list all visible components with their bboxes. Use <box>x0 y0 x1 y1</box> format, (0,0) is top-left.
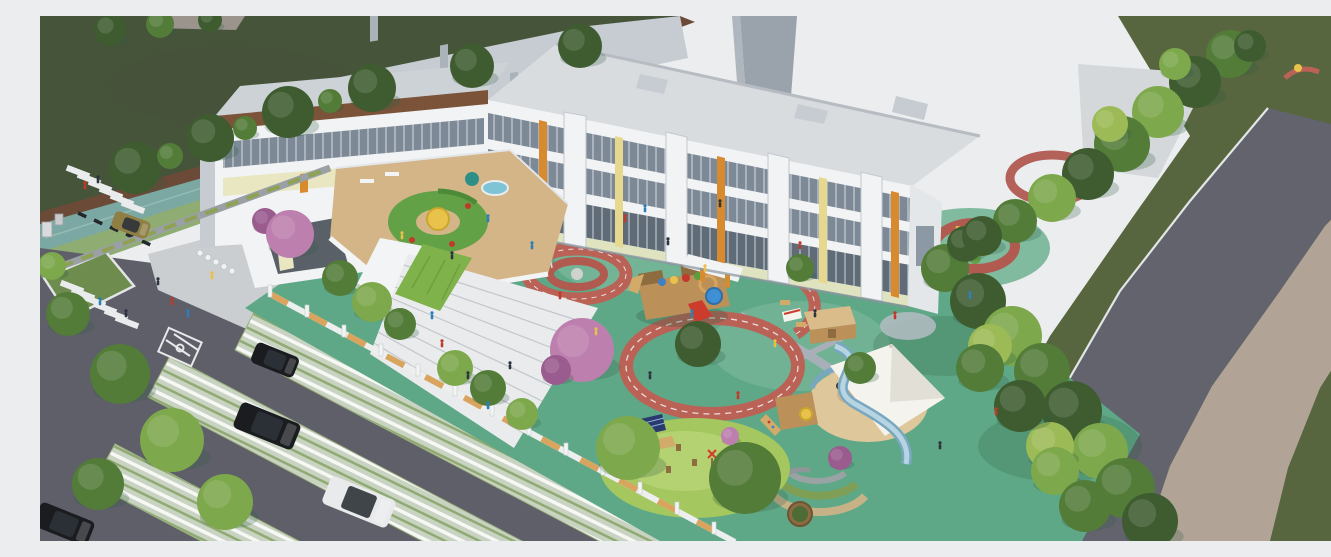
accent-column-yellow <box>615 136 623 248</box>
cushion <box>409 237 415 243</box>
person <box>508 361 511 369</box>
person <box>83 181 86 189</box>
bench <box>385 172 399 176</box>
person <box>893 311 896 319</box>
cushion <box>449 241 455 247</box>
cushion <box>465 203 471 209</box>
portico-pier <box>768 153 789 284</box>
person <box>156 277 159 285</box>
person <box>994 407 997 415</box>
accent-column-orange <box>717 156 725 266</box>
portico-pier <box>564 112 586 248</box>
person <box>450 251 453 259</box>
accent-column-orange <box>891 191 899 298</box>
person <box>718 199 721 207</box>
person <box>486 401 489 409</box>
person <box>400 231 403 239</box>
person <box>813 309 816 317</box>
person <box>690 309 693 317</box>
accent-column-yellow <box>819 177 827 284</box>
person <box>98 297 101 305</box>
tree <box>146 16 177 38</box>
person <box>186 309 189 317</box>
portico-pier <box>666 132 687 266</box>
scene-canvas <box>40 16 1331 541</box>
person <box>486 214 489 222</box>
person <box>703 264 706 272</box>
yellow-canopy-table <box>427 208 449 230</box>
portico-pier <box>861 172 882 301</box>
picnic-table <box>796 322 806 327</box>
person <box>530 241 533 249</box>
person <box>594 327 597 335</box>
person <box>96 175 99 183</box>
person <box>666 237 669 245</box>
hut-door <box>828 329 836 338</box>
person <box>430 311 433 319</box>
person <box>170 297 173 305</box>
person <box>798 241 801 249</box>
person <box>210 271 213 279</box>
bench <box>360 179 374 183</box>
shade-umbrella <box>465 172 479 186</box>
person <box>648 371 651 379</box>
picnic-table <box>780 300 790 305</box>
neighbor-play-dot <box>1294 64 1302 72</box>
person <box>968 291 971 299</box>
canopy-column <box>725 274 730 288</box>
person <box>623 214 626 222</box>
person <box>124 309 127 317</box>
person <box>773 339 776 347</box>
splash-pool <box>482 181 508 195</box>
castle-tube-slide <box>706 288 722 304</box>
person <box>938 441 941 449</box>
person <box>736 391 739 399</box>
flagpole-base <box>571 268 583 280</box>
person <box>643 204 646 212</box>
person <box>466 371 469 379</box>
plaza-pad <box>880 312 936 340</box>
person <box>440 339 443 347</box>
person <box>558 291 561 299</box>
aerial-render-kindergarten-campus <box>40 16 1331 541</box>
